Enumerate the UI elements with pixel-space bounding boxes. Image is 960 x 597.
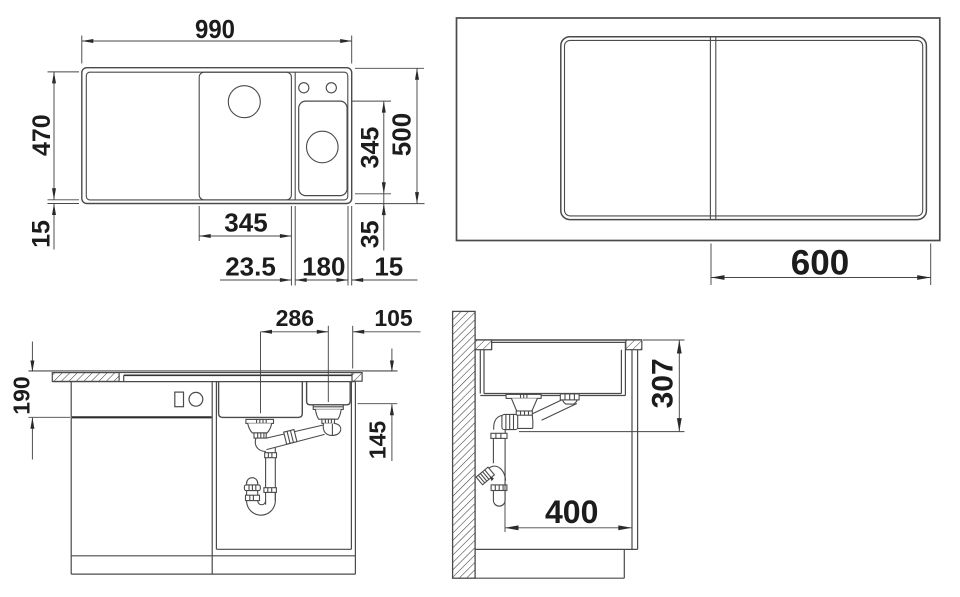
svg-text:345: 345	[224, 208, 267, 238]
svg-text:15: 15	[374, 252, 403, 282]
svg-text:345: 345	[356, 127, 384, 169]
svg-text:470: 470	[28, 114, 56, 156]
svg-text:307: 307	[647, 358, 680, 408]
svg-text:990: 990	[195, 14, 235, 44]
svg-text:180: 180	[302, 252, 345, 282]
svg-text:105: 105	[374, 305, 413, 331]
svg-text:15: 15	[28, 220, 56, 248]
svg-text:190: 190	[8, 376, 34, 414]
svg-text:23.5: 23.5	[225, 252, 276, 282]
svg-text:500: 500	[386, 113, 416, 156]
svg-text:400: 400	[545, 494, 598, 530]
svg-text:600: 600	[791, 243, 849, 282]
svg-text:35: 35	[356, 220, 384, 248]
svg-text:145: 145	[364, 421, 390, 460]
svg-text:286: 286	[276, 305, 314, 331]
